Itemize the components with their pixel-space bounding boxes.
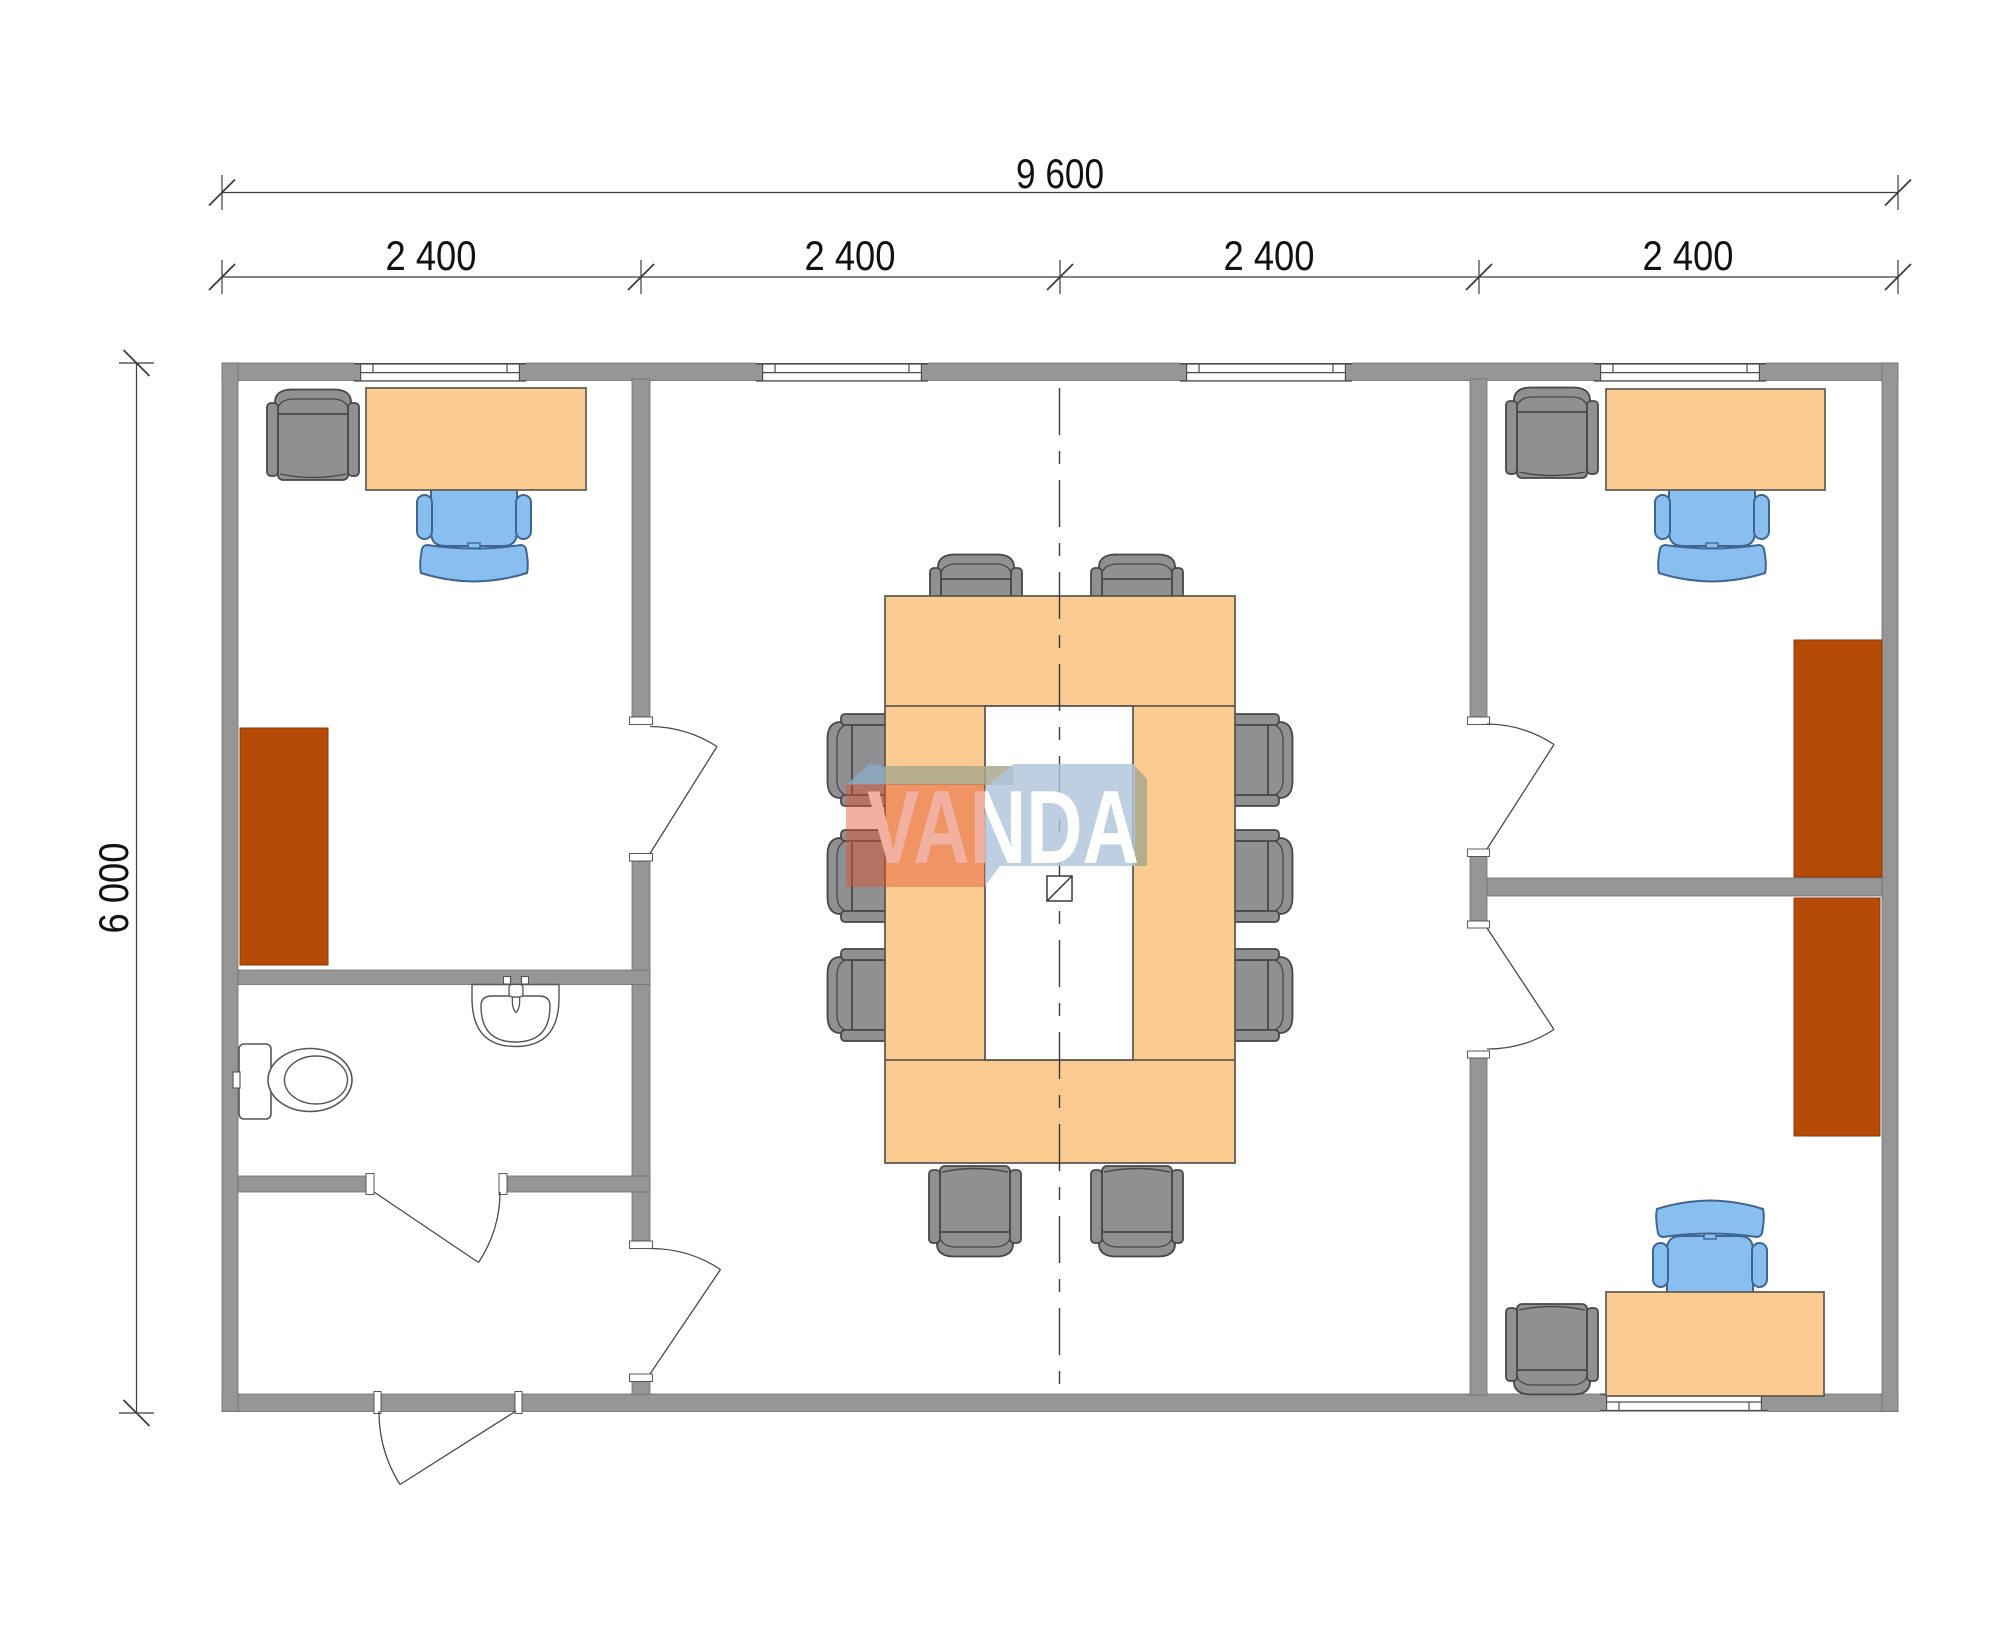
svg-text:9 600: 9 600 (1016, 150, 1104, 197)
svg-text:2 400: 2 400 (1224, 232, 1315, 279)
svg-text:6 000: 6 000 (90, 843, 137, 934)
svg-text:2 400: 2 400 (805, 232, 896, 279)
svg-text:2 400: 2 400 (1643, 232, 1734, 279)
svg-text:2 400: 2 400 (386, 232, 477, 279)
